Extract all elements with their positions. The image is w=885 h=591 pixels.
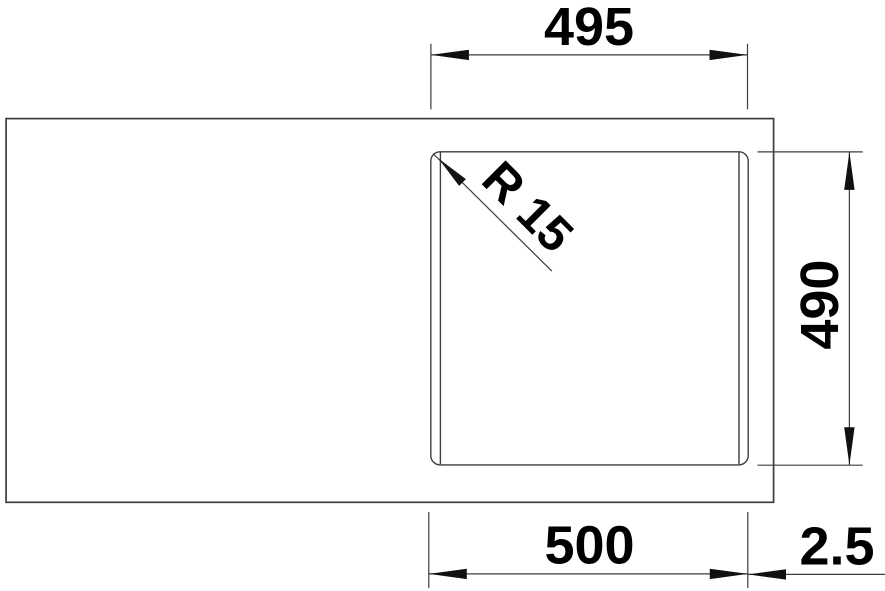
svg-text:495: 495: [544, 0, 634, 57]
svg-text:500: 500: [544, 515, 634, 575]
svg-text:2.5: 2.5: [799, 516, 874, 576]
svg-text:490: 490: [790, 260, 850, 350]
